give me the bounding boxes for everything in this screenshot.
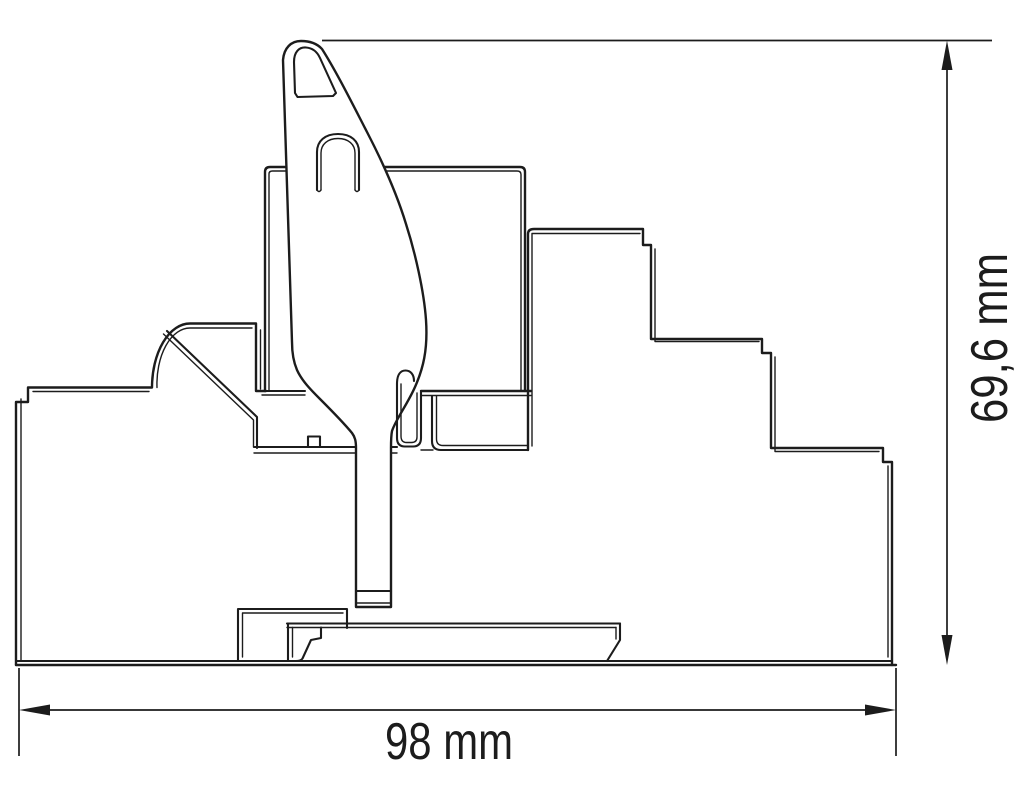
- step-inner-3: [775, 357, 879, 452]
- width-arrow-left-icon: [19, 705, 50, 716]
- chamber-slope: [167, 331, 257, 448]
- height-dimension: 69,6 mm: [322, 41, 1019, 666]
- housing-left-outline: [16, 324, 266, 666]
- socket-compartment: [432, 396, 528, 450]
- height-arrow-down-icon: [942, 635, 953, 665]
- ejector-lever: [283, 41, 426, 607]
- rail-hook-right-claw: [607, 624, 620, 662]
- step-inner-1: [532, 234, 640, 447]
- width-arrow-right-icon: [865, 705, 896, 716]
- width-dimension-label: 98 mm: [385, 713, 513, 771]
- dimension-drawing: 69,6 mm 98 mm: [0, 0, 1024, 806]
- socket-compartment-inner: [437, 396, 529, 446]
- din-rail-mount: [16, 609, 896, 665]
- lever-outline: [283, 41, 426, 607]
- housing-left-arc-inner: [157, 328, 252, 388]
- step-inner-2: [655, 249, 759, 342]
- socket-housing-right: [391, 229, 892, 665]
- height-arrow-up-icon: [942, 41, 953, 71]
- rail-hook-left-claw: [296, 628, 321, 662]
- housing-right-step-outline: [528, 229, 892, 665]
- chamber-slope-inner: [164, 334, 254, 447]
- floor-tab: [308, 437, 320, 448]
- height-dimension-label: 69,6 mm: [961, 253, 1019, 423]
- technical-drawing-canvas: 69,6 mm 98 mm: [0, 0, 1024, 806]
- width-dimension: 98 mm: [19, 668, 896, 771]
